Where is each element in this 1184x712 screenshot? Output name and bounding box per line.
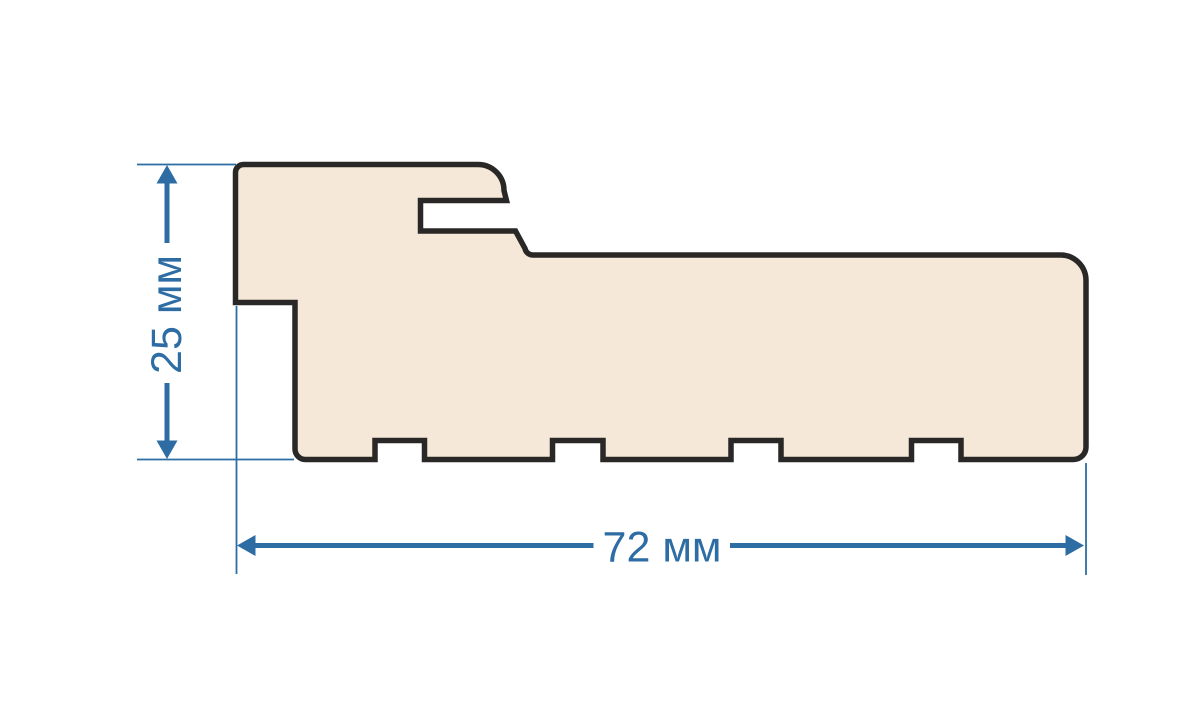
svg-text:25 мм: 25 мм — [143, 255, 191, 374]
svg-text:72 мм: 72 мм — [603, 524, 722, 572]
